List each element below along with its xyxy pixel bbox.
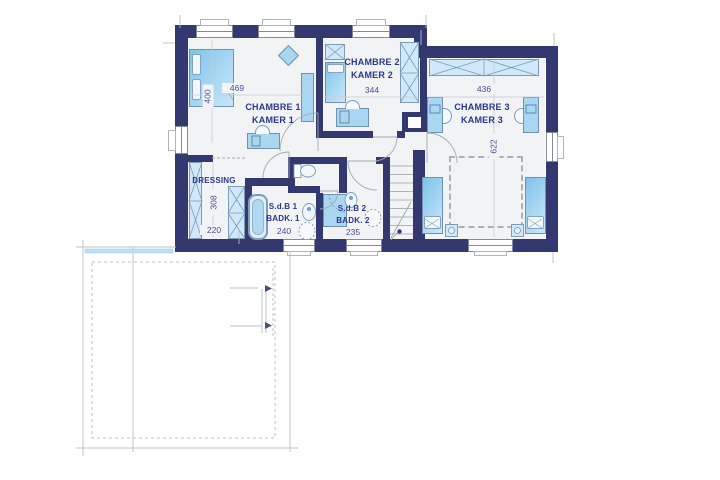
wall-dressing-stub	[188, 155, 213, 162]
wall-ch2-hall	[316, 131, 373, 138]
nightstand	[511, 224, 524, 237]
room-label-chambre3-nl: KAMER 3	[440, 115, 524, 125]
chair	[345, 100, 360, 109]
rug	[449, 156, 523, 228]
wall-bath2-stairs	[383, 157, 390, 240]
window-sill	[356, 19, 386, 26]
pillow	[424, 216, 441, 229]
window-sill	[168, 130, 176, 151]
window	[175, 126, 188, 154]
wall-ch1-ch2	[316, 38, 323, 131]
room-label-bath2-fr: S.d.B 2	[330, 204, 374, 213]
desk	[336, 108, 369, 127]
nightstand	[445, 224, 458, 237]
window	[258, 25, 295, 38]
wall-ch2-hall-b	[397, 131, 405, 138]
wardrobe	[228, 186, 245, 239]
desk	[247, 133, 280, 149]
wall-bath1-bath2	[316, 193, 323, 240]
dim-bath1-width: 240	[270, 226, 298, 236]
room-label-chambre1-nl: KAMER 1	[231, 115, 315, 125]
dim-chambre1-height: 400	[203, 85, 214, 109]
window-sill	[350, 251, 378, 256]
window-sill	[474, 251, 507, 256]
dim-chambre1-width: 469	[222, 83, 252, 93]
duct-inner	[408, 117, 421, 128]
pillow	[192, 54, 201, 75]
wall-wc-right	[339, 157, 347, 193]
wall-top-right	[414, 46, 558, 58]
dim-dressing-height: 308	[209, 190, 220, 216]
room-label-chambre2-nl: KAMER 2	[330, 70, 414, 80]
window	[196, 25, 233, 38]
roof-edge	[85, 249, 173, 253]
chair	[255, 125, 270, 134]
room-label-bath1-fr: S.d.B 1	[261, 202, 305, 211]
wall-wc-bottom	[288, 186, 320, 193]
window-sill	[287, 251, 311, 256]
room-label-chambre3-fr: CHAMBRE 3	[440, 102, 524, 112]
window-sill	[557, 136, 564, 159]
dim-chambre2-width: 344	[358, 85, 386, 95]
room-label-dressing: DRESSING	[189, 176, 239, 185]
window-sill	[262, 19, 291, 26]
pillow	[527, 216, 544, 229]
dim-chambre3-height: 622	[489, 134, 500, 160]
wall-ch2-ch3	[420, 38, 427, 114]
wardrobe	[429, 59, 539, 76]
room-label-bath1-nl: BADK. 1	[258, 214, 308, 223]
ground-floor-outline	[76, 240, 298, 456]
room-label-bath2-nl: BADK. 2	[328, 216, 378, 225]
dim-dressing-width: 220	[200, 225, 228, 235]
room-label-chambre2-fr: CHAMBRE 2	[330, 57, 414, 67]
window-sill	[200, 19, 229, 26]
pillow	[192, 79, 201, 100]
dim-chambre3-width: 436	[470, 84, 498, 94]
window	[352, 25, 390, 38]
dim-bath2-width: 235	[339, 227, 367, 237]
room-label-chambre1-fr: CHAMBRE 1	[231, 102, 315, 112]
floor-plan: CHAMBRE 1 KAMER 1 CHAMBRE 2 KAMER 2 CHAM…	[0, 0, 720, 480]
desk	[523, 97, 539, 133]
